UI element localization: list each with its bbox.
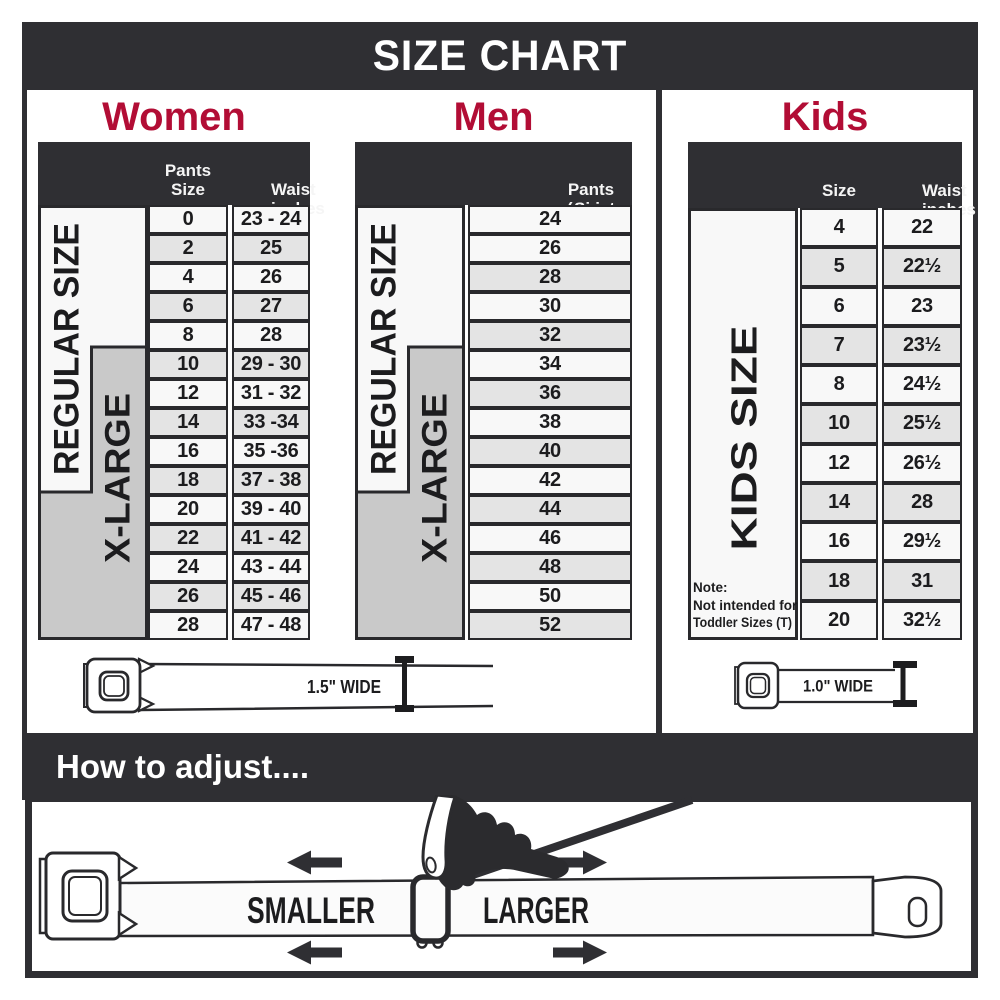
waist-value-cell: 25½ (882, 404, 962, 443)
kids-note-line3: Toddler Sizes (T) (693, 615, 792, 630)
size-cell: 8 (800, 365, 878, 404)
kids-note-line1: Note: (693, 580, 728, 595)
waist-value-cell: 24½ (882, 365, 962, 404)
pants-size-cell: 2 (148, 234, 228, 263)
pants-size-cell: 10 (148, 350, 228, 379)
waist-value-cell: 28 (232, 321, 310, 350)
waist-value-cell: 33 -34 (232, 408, 310, 437)
pants-size-cell: 40 (468, 437, 632, 466)
size-chart-title: SIZE CHART (373, 32, 628, 81)
men-pants-size-column: 242628303234363840424446485052 (468, 205, 632, 640)
pants-size-cell: 46 (468, 524, 632, 553)
larger-label: LARGER (483, 890, 589, 931)
pants-size-cell: 24 (468, 205, 632, 234)
waist-value-cell: 31 - 32 (232, 379, 310, 408)
pants-size-cell: 30 (468, 292, 632, 321)
size-cell: 12 (800, 444, 878, 483)
pants-size-cell: 36 (468, 379, 632, 408)
pants-size-cell: 48 (468, 553, 632, 582)
pants-size-cell: 14 (148, 408, 228, 437)
size-cell: 16 (800, 522, 878, 561)
waist-value-cell: 23½ (882, 326, 962, 365)
pants-size-cell: 16 (148, 437, 228, 466)
men-xlarge-label: X-LARGE (416, 393, 455, 563)
kids-size-column: 45678101214161820 (800, 208, 878, 640)
size-cell: 6 (800, 287, 878, 326)
how-to-adjust-heading: How to adjust.... (22, 748, 309, 786)
size-cell: 4 (800, 208, 878, 247)
kids-size-header-label: Size (800, 181, 878, 200)
men-pants-size-header-label: Pants Size(waist inches) (468, 180, 632, 199)
waist-value-cell: 32½ (882, 601, 962, 640)
adjust-illustration-box: SMALLER LARGER (25, 795, 978, 978)
waist-value-cell: 23 - 24 (232, 205, 310, 234)
frame-right-border (973, 90, 978, 733)
women-waist-header-label: Waistinches (232, 180, 310, 199)
waist-value-cell: 22 (882, 208, 962, 247)
belt-tip-slot (909, 898, 926, 926)
women-pants-size-column: 0246810121416182022242628 (148, 205, 228, 640)
pants-size-cell: 42 (468, 466, 632, 495)
women-section-title: Women (38, 94, 310, 140)
kids-size-label: KIDS SIZE (724, 326, 765, 551)
size-chart-page: SIZE CHART Women Men Kids Pants Size Wai… (0, 0, 1000, 1000)
pants-size-cell: 18 (148, 466, 228, 495)
waist-value-cell: 23 (882, 287, 962, 326)
frame-left-border (22, 90, 27, 733)
pants-size-cell: 38 (468, 408, 632, 437)
kids-belt-illustration: 1.0" WIDE (728, 653, 928, 715)
kids-note-line2: Not intended for (693, 598, 798, 613)
pants-size-cell: 12 (148, 379, 228, 408)
belt-tip (873, 877, 941, 937)
waist-value-cell: 39 - 40 (232, 495, 310, 524)
pants-size-cell: 26 (468, 234, 632, 263)
women-waist-column: 23 - 242526272829 - 3031 - 3233 -3435 -3… (232, 205, 310, 640)
waist-value-cell: 45 - 46 (232, 582, 310, 611)
women-xlarge-label: X-LARGE (99, 393, 138, 563)
men-table-header: Pants Size(waist inches) (355, 142, 632, 205)
waist-value-cell: 29 - 30 (232, 350, 310, 379)
waist-value-cell: 37 - 38 (232, 466, 310, 495)
kids-waist-header-label: Waistinches (882, 181, 962, 200)
slider-body (413, 877, 448, 941)
kids-waist-column: 2222½2323½24½25½26½2829½3132½ (882, 208, 962, 640)
kids-belt-width-label: 1.0" WIDE (803, 677, 873, 696)
pants-size-cell: 24 (148, 553, 228, 582)
pants-size-cell: 52 (468, 611, 632, 640)
how-to-adjust-band: How to adjust.... (22, 733, 978, 800)
size-cell: 14 (800, 483, 878, 522)
waist-value-cell: 22½ (882, 247, 962, 286)
pants-size-cell: 28 (148, 611, 228, 640)
size-cell: 5 (800, 247, 878, 286)
pants-size-cell: 4 (148, 263, 228, 292)
waist-value-cell: 35 -36 (232, 437, 310, 466)
kids-size-group-label: KIDS SIZE Note: Not intended for Toddler… (688, 208, 798, 640)
adult-belt-illustration: 1.5" WIDE (78, 648, 508, 718)
waist-value-cell: 26½ (882, 444, 962, 483)
waist-value-cell: 31 (882, 561, 962, 600)
pants-size-cell: 28 (468, 263, 632, 292)
smaller-label: SMALLER (247, 890, 375, 931)
waist-value-cell: 41 - 42 (232, 524, 310, 553)
adult-belt-width-label: 1.5" WIDE (307, 677, 381, 697)
size-cell: 10 (800, 404, 878, 443)
pants-size-cell: 32 (468, 321, 632, 350)
belt-slider (413, 877, 448, 948)
waist-value-cell: 25 (232, 234, 310, 263)
size-chart-title-band: SIZE CHART (22, 22, 978, 90)
men-section-title: Men (355, 94, 632, 140)
size-cell: 20 (800, 601, 878, 640)
kids-table-header: Size Waistinches (688, 142, 962, 208)
women-size-group-labels: REGULAR SIZE X-LARGE (38, 205, 148, 640)
waist-value-cell: 43 - 44 (232, 553, 310, 582)
pants-size-cell: 34 (468, 350, 632, 379)
waist-value-cell: 27 (232, 292, 310, 321)
size-cell: 18 (800, 561, 878, 600)
size-cell: 7 (800, 326, 878, 365)
waist-value-cell: 29½ (882, 522, 962, 561)
pants-size-cell: 6 (148, 292, 228, 321)
women-regular-size-label: REGULAR SIZE (48, 223, 87, 475)
kids-section-title: Kids (688, 94, 962, 140)
men-size-group-labels: REGULAR SIZE X-LARGE (355, 205, 465, 640)
pants-size-cell: 26 (148, 582, 228, 611)
women-table-header: Pants Size Waistinches (38, 142, 310, 205)
pants-size-cell: 8 (148, 321, 228, 350)
pants-size-cell: 44 (468, 495, 632, 524)
waist-value-cell: 28 (882, 483, 962, 522)
section-divider (656, 90, 662, 733)
waist-value-cell: 47 - 48 (232, 611, 310, 640)
kids-belt-adjuster-bar (893, 661, 917, 707)
waist-value-cell: 26 (232, 263, 310, 292)
pants-size-cell: 20 (148, 495, 228, 524)
pants-size-cell: 50 (468, 582, 632, 611)
pants-size-cell: 0 (148, 205, 228, 234)
belt-tip-shape (873, 877, 941, 937)
men-regular-size-label: REGULAR SIZE (365, 223, 404, 475)
women-pants-size-header-label: Pants Size (148, 161, 228, 199)
pants-size-cell: 22 (148, 524, 228, 553)
